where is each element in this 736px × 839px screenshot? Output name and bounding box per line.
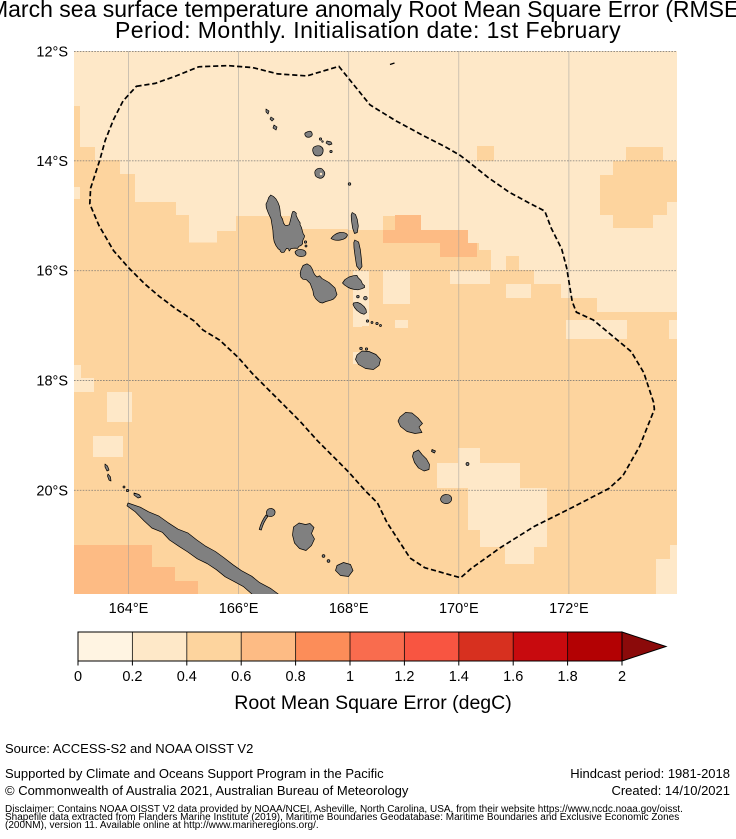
svg-text:170°E: 170°E xyxy=(439,601,479,617)
svg-text:18°S: 18°S xyxy=(36,374,68,390)
svg-text:172°E: 172°E xyxy=(549,601,589,617)
svg-text:0.2: 0.2 xyxy=(122,669,142,685)
svg-text:0.4: 0.4 xyxy=(177,669,197,685)
svg-text:164°E: 164°E xyxy=(109,601,149,617)
svg-text:1: 1 xyxy=(346,669,354,685)
svg-text:1.6: 1.6 xyxy=(503,669,523,685)
svg-text:0: 0 xyxy=(74,669,82,685)
svg-text:0.6: 0.6 xyxy=(231,669,251,685)
svg-text:Root Mean Square Error (degC): Root Mean Square Error (degC) xyxy=(234,692,511,714)
svg-text:168°E: 168°E xyxy=(329,601,369,617)
svg-text:166°E: 166°E xyxy=(219,601,259,617)
svg-text:1.4: 1.4 xyxy=(449,669,469,685)
svg-text:2: 2 xyxy=(618,669,626,685)
svg-text:1.2: 1.2 xyxy=(394,669,414,685)
svg-text:12°S: 12°S xyxy=(36,44,68,60)
svg-text:1.8: 1.8 xyxy=(558,669,578,685)
svg-text:0.8: 0.8 xyxy=(286,669,306,685)
svg-text:14°S: 14°S xyxy=(36,154,68,170)
svg-text:16°S: 16°S xyxy=(36,264,68,280)
svg-text:20°S: 20°S xyxy=(36,483,68,499)
